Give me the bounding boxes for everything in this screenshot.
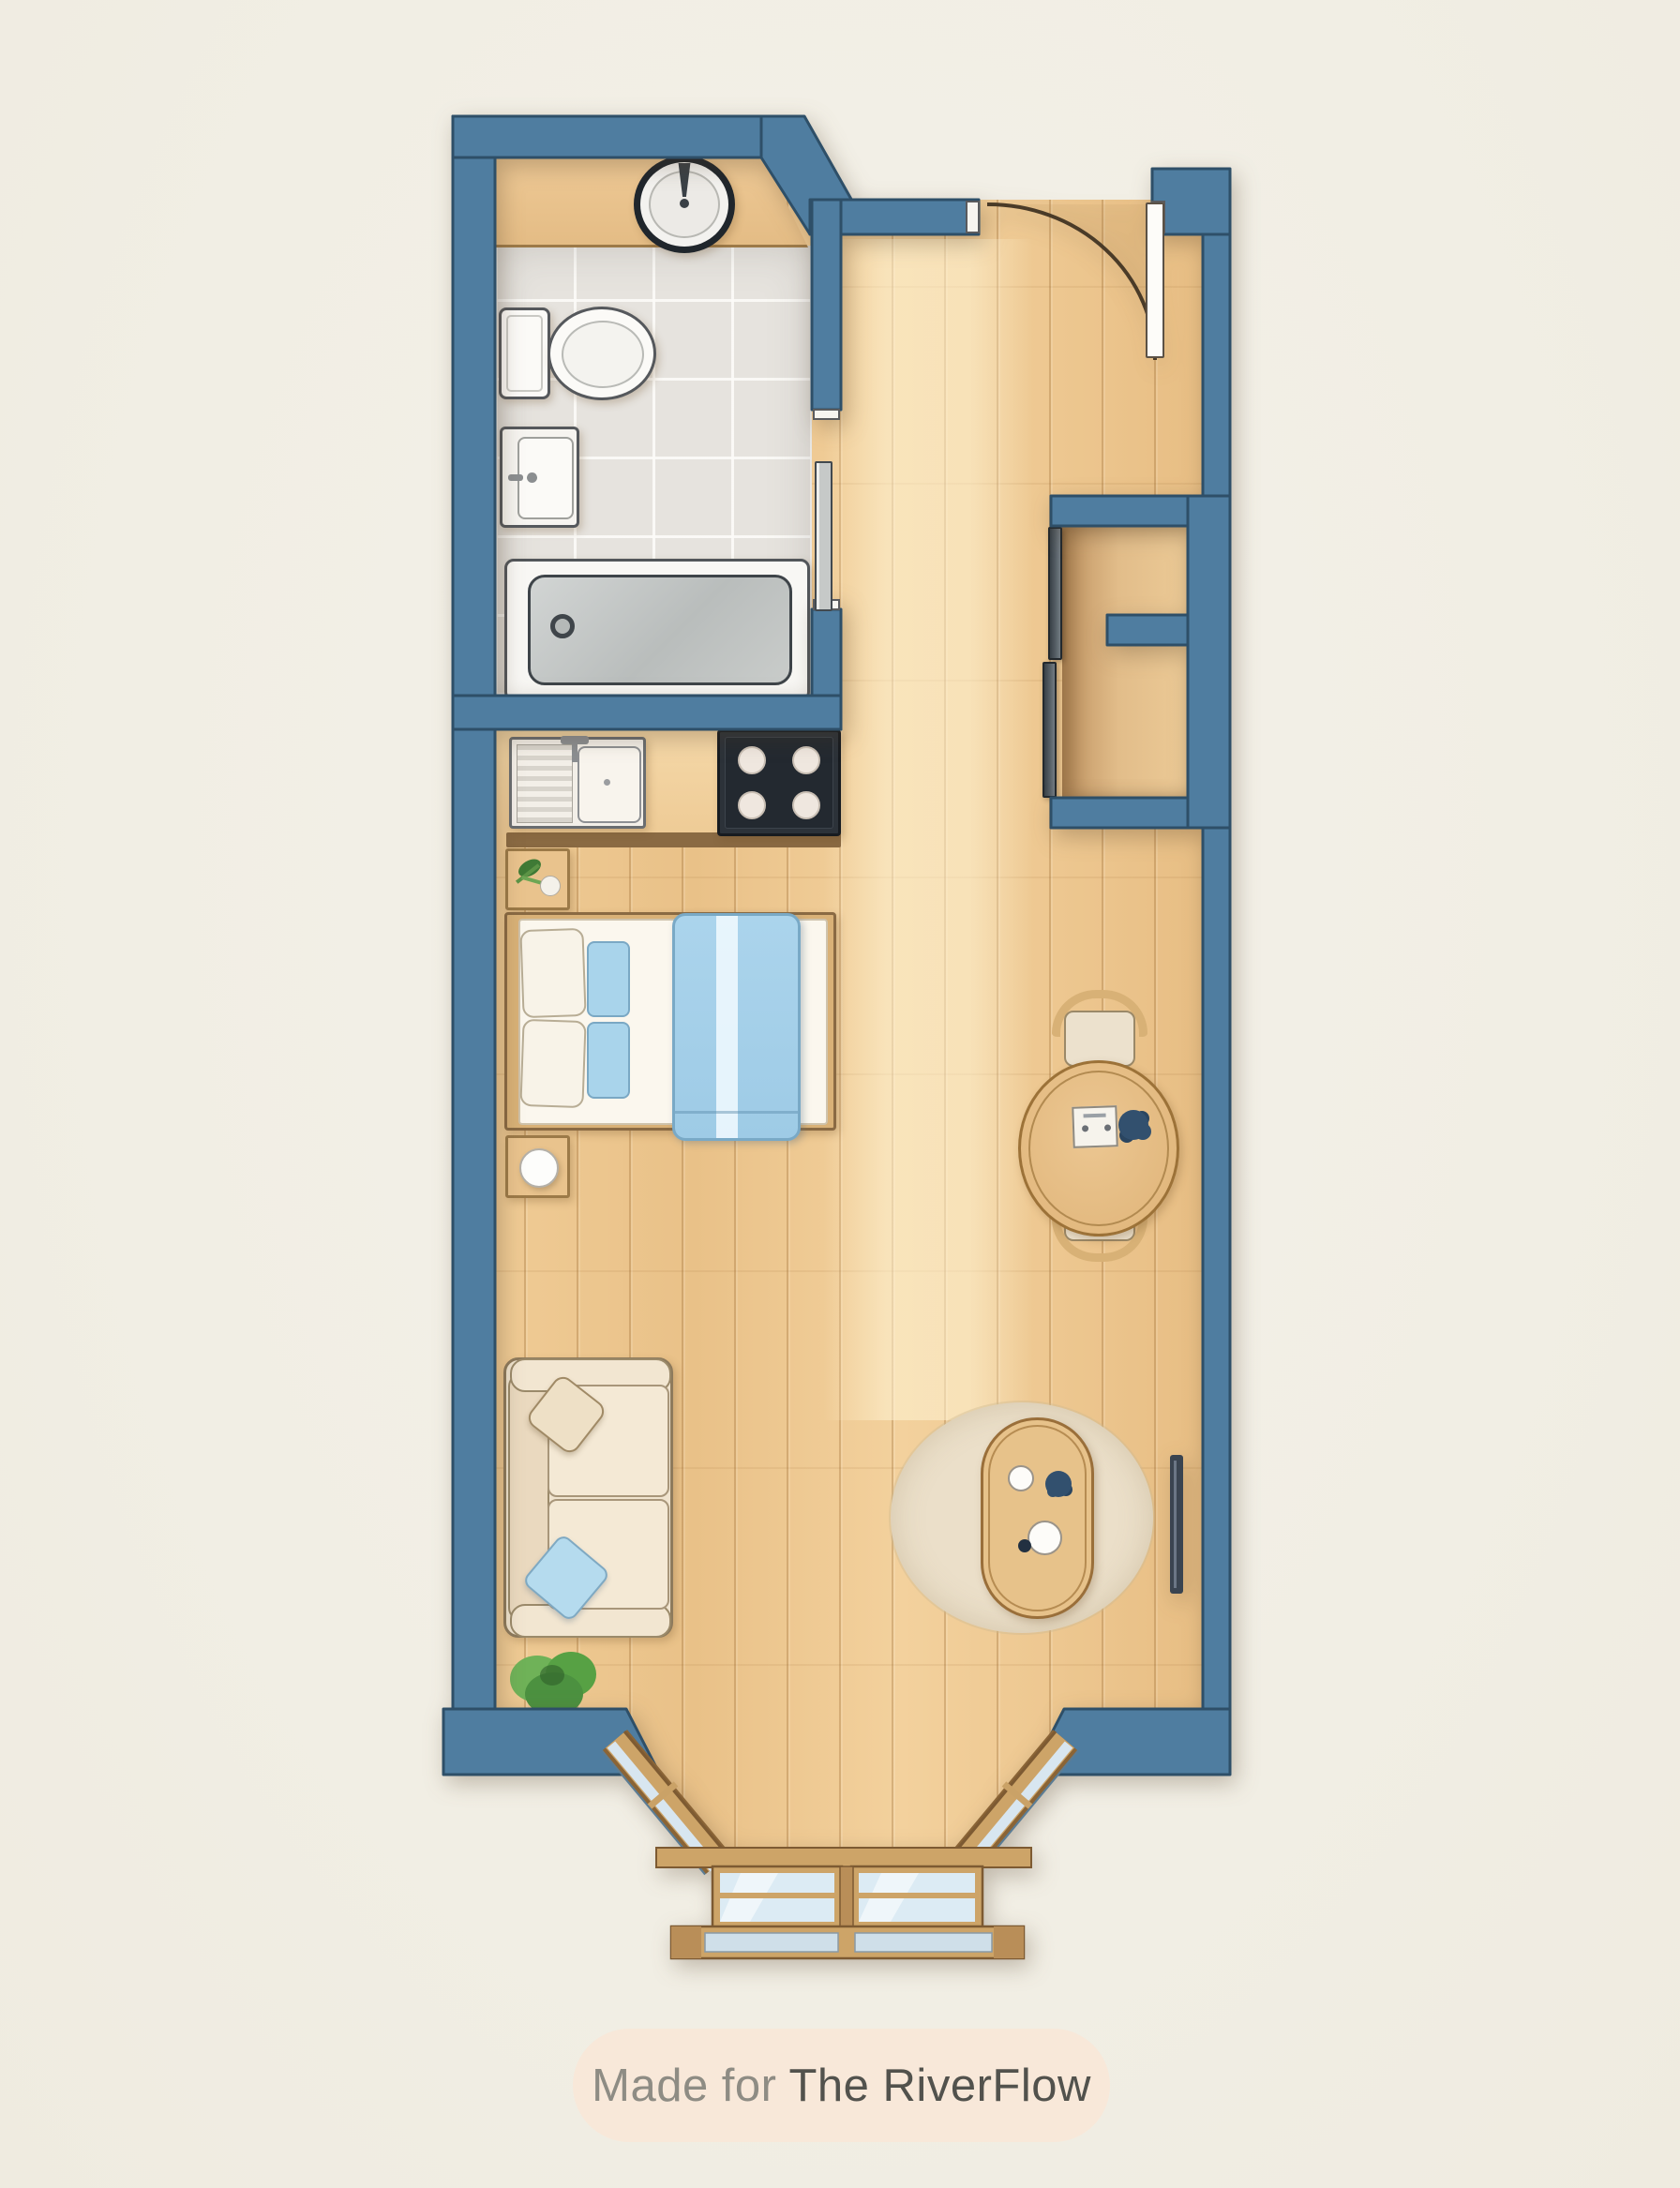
entry-door-leaf — [1146, 202, 1164, 358]
made-for-badge: Made for The RiverFlow — [573, 2029, 1110, 2142]
badge-brand: The RiverFlow — [789, 2060, 1091, 2112]
floor-plan-canvas: Made for The RiverFlow — [0, 0, 1680, 2188]
door-jamb — [967, 202, 979, 232]
entry-door-swing-icon — [987, 204, 1155, 360]
bay-window-icon — [604, 1731, 1076, 1958]
bathroom-sliding-door-icon — [815, 461, 832, 611]
radiator-line — [1174, 1461, 1177, 1588]
walls-layer — [0, 0, 1680, 2188]
door-jamb — [814, 410, 839, 419]
badge-prefix: Made for — [592, 2060, 776, 2112]
